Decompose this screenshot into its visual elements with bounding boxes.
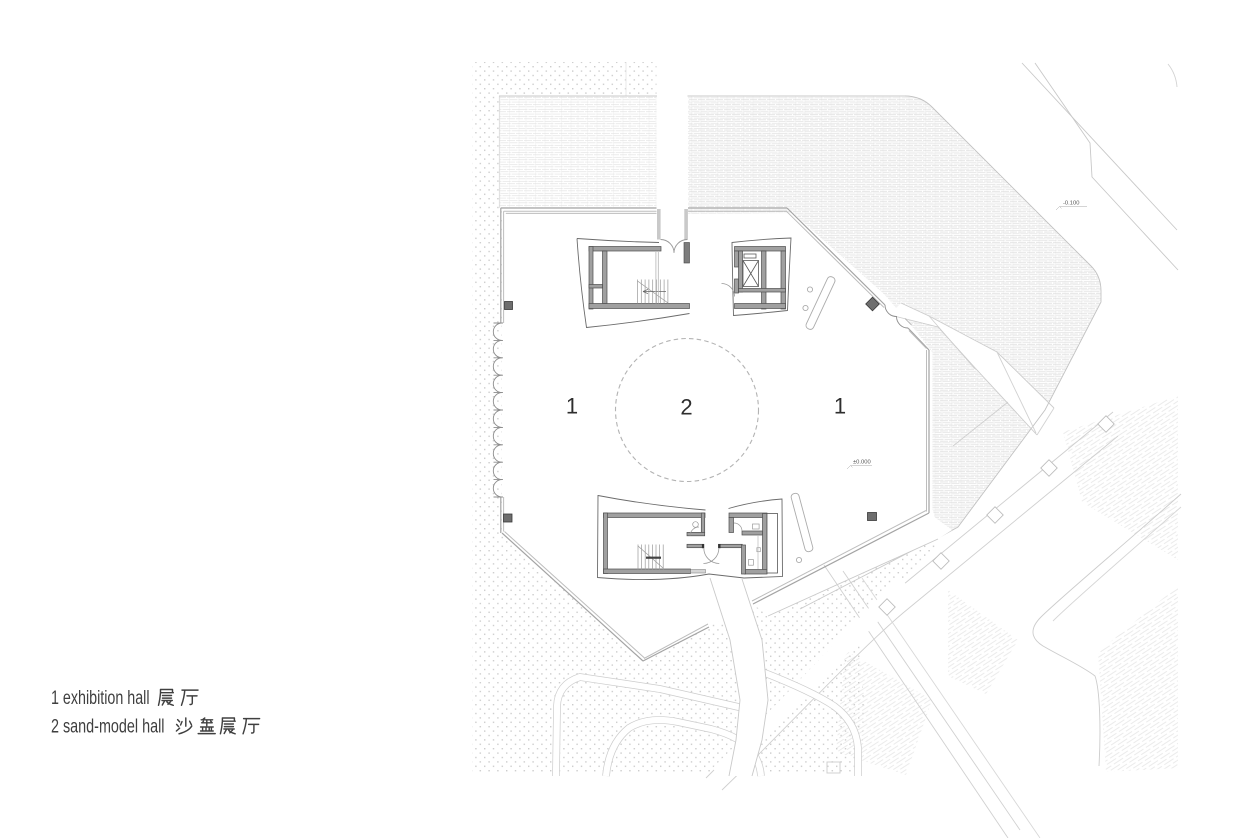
svg-text:2 sand-model hall: 2 sand-model hall	[51, 717, 165, 738]
svg-text:±0.000: ±0.000	[853, 460, 871, 466]
svg-text:1 exhibition hall: 1 exhibition hall	[51, 688, 150, 709]
svg-text:1: 1	[566, 394, 578, 419]
svg-text:-0.100: -0.100	[1063, 201, 1079, 207]
svg-text:2: 2	[680, 395, 692, 420]
svg-text:1: 1	[834, 394, 846, 419]
